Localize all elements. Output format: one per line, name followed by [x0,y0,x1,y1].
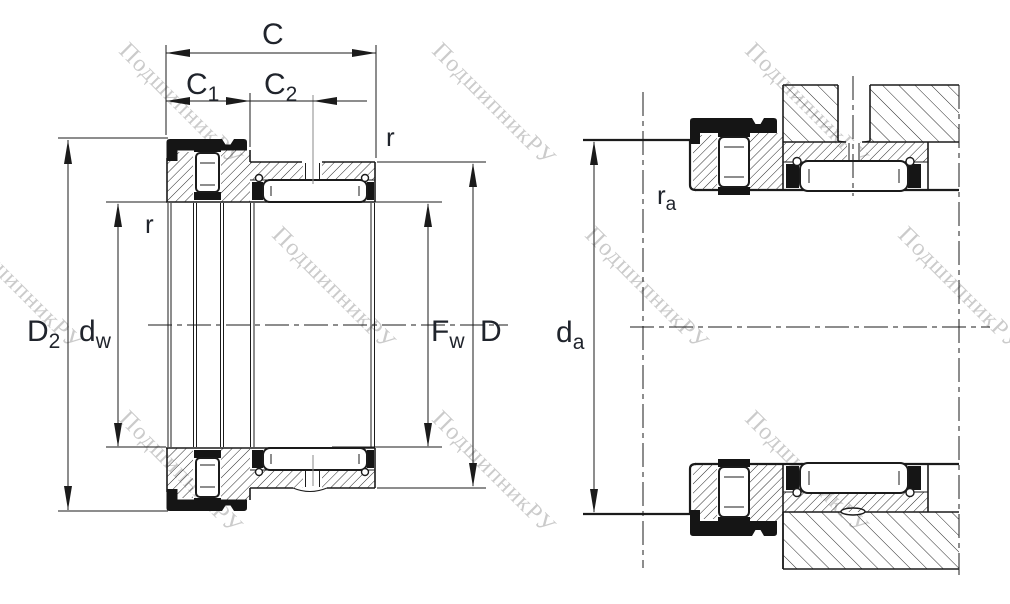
right-view-dimensions: da ra [556,141,677,513]
needle-roller [263,448,367,470]
needle-cage-right [367,182,374,200]
cage-lip [906,489,914,497]
dim-label-r-inner: r [145,209,154,239]
needle-cage-left [786,466,799,490]
watermark: ПодшипникРУ [267,222,401,356]
watermark: ПодшипникРУ [893,222,1010,356]
outer-ring-flange-section [221,448,250,500]
outer-ring-flange-section [750,133,783,190]
cage-lip [362,175,369,182]
watermark: ПодшипникРУ [580,222,714,356]
cage-lip [906,158,914,166]
technical-drawing-page: ПодшипникРУ ПодшипникРУ ПодшипникРУ Подш… [0,0,1010,604]
cage-lip [256,469,263,476]
thrust-roller [719,137,749,187]
cage-lip [793,158,801,166]
dim-label-D: D [480,315,502,348]
dim-label-Fw: Fw [431,315,465,353]
dim-label-da: da [556,316,585,354]
thrust-roller [196,458,219,497]
left-bearing-bottom-half [166,448,375,511]
left-view: C C1 C2 r r D2 dw [27,18,508,511]
needle-cage-left [786,164,799,188]
outer-ring-flange-section [221,150,250,202]
thrust-roller [719,467,749,517]
needle-cage-right [367,450,374,468]
cage-lip [362,469,369,476]
needle-roller [800,463,908,493]
bearing-drawing: ПодшипникРУ ПодшипникРУ ПодшипникРУ Подш… [0,0,1010,604]
needle-cage-left [252,182,263,200]
watermark: ПодшипникРУ [427,406,561,540]
left-view-dimensions: C C1 C2 r r D2 dw [27,18,502,511]
needle-roller [263,180,367,202]
needle-cage-right [908,466,921,490]
thrust-roller [196,153,219,192]
thrust-cage-inner [718,187,750,195]
watermark: ПодшипникРУ [427,38,561,172]
right-view: da ra [556,76,990,575]
housing-bottom [783,508,959,569]
dim-label-r-outer: r [386,122,395,152]
dim-label-dw: dw [79,315,112,353]
dim-label-C1: C1 [186,68,219,106]
thrust-cage-inner [718,459,750,467]
needle-cage-right [908,164,921,188]
thrust-cage-inner [194,192,221,200]
outer-ring-flange-section [750,464,783,521]
needle-roller [800,161,908,191]
dim-label-C: C [262,18,284,51]
dim-label-ra: ra [657,180,677,215]
cage-lip [793,489,801,497]
thrust-cage-inner [194,450,221,458]
cage-lip [256,175,263,182]
dim-label-C2: C2 [264,68,297,106]
needle-cage-left [252,450,263,468]
housing-top [783,85,959,142]
